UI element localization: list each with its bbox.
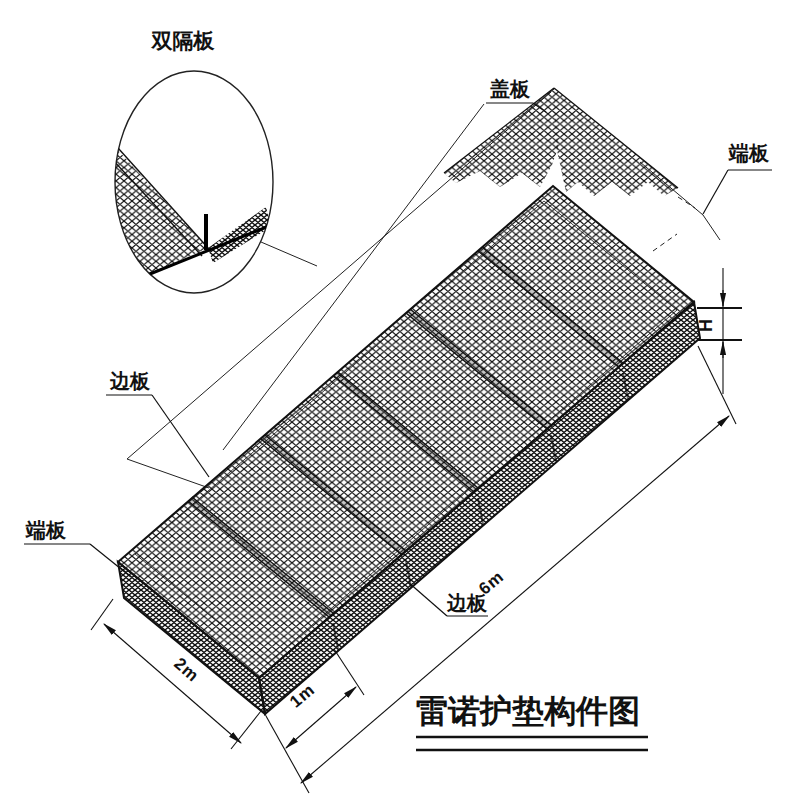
ext-1m-right — [334, 649, 364, 695]
mattress-body — [118, 186, 700, 714]
cover-fold-corner — [127, 459, 209, 488]
drawing-canvas: 双隔板 盖板 端板 边板 端板 边板 2m 1m 6m H 雷诺护垫构件图 — [0, 0, 800, 800]
drawing-title: 雷诺护垫构件图 — [416, 693, 640, 729]
hidden-fold-dash — [653, 234, 677, 251]
cover-right-wing — [554, 88, 678, 196]
ext-2m-left — [91, 599, 113, 630]
detail-circle — [108, 71, 317, 293]
label-double-diaphragm: 双隔板 — [151, 29, 216, 52]
ext-6m-right — [698, 346, 736, 424]
label-side-plate-left: 边板 — [109, 370, 151, 392]
ext-2m-right — [231, 711, 261, 749]
detail-pointer-line — [261, 242, 317, 266]
detail-mesh-right — [208, 207, 271, 263]
cover-plate-mesh — [444, 88, 678, 196]
label-end-plate-bottom-left: 端板 — [25, 519, 67, 541]
cover-fold-corner-right — [703, 215, 720, 240]
label-end-plate-right: 端板 — [728, 142, 770, 164]
label-side-plate-bottom: 边板 — [446, 592, 488, 614]
reno-mattress-diagram: 双隔板 盖板 端板 边板 端板 边板 2m 1m 6m H 雷诺护垫构件图 — [0, 0, 800, 800]
detail-circle-content — [108, 146, 271, 278]
label-cover-plate: 盖板 — [490, 78, 531, 100]
dim-text-h: H — [696, 318, 716, 332]
title-underline — [416, 737, 648, 750]
